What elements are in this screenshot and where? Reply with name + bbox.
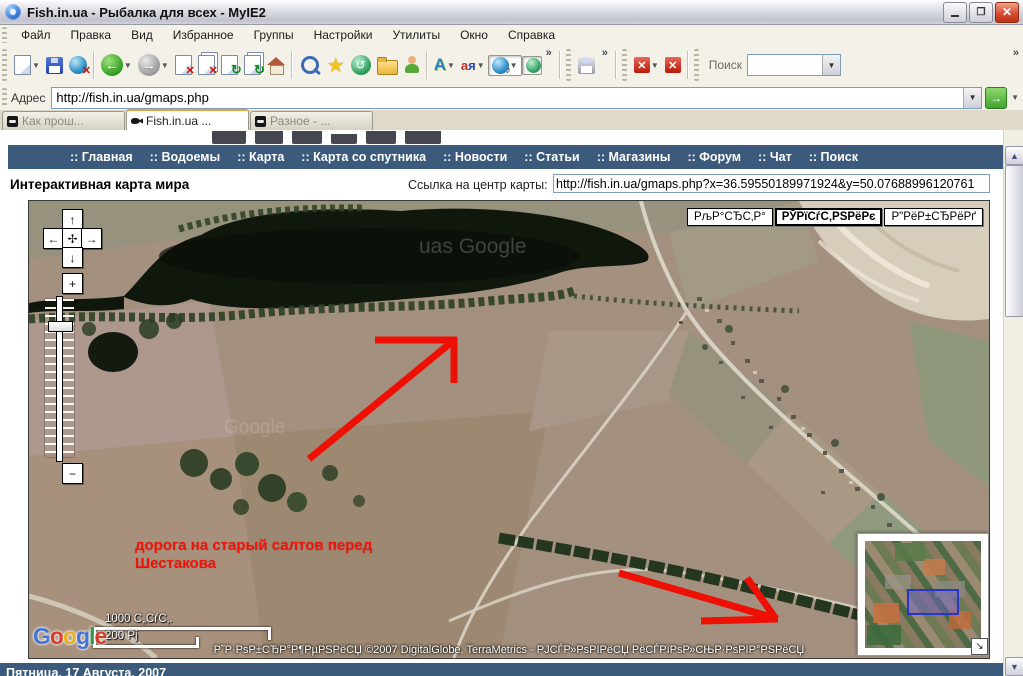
tab-raznoe[interactable]: Разное - ... xyxy=(250,111,373,130)
close-tab-button[interactable]: ✕ xyxy=(172,50,195,80)
partial-logo-letters xyxy=(212,131,441,144)
address-label: Адрес xyxy=(11,91,45,105)
search-dropdown-button[interactable]: ▼ xyxy=(822,55,840,75)
separator xyxy=(559,51,561,79)
toolbar-grip[interactable] xyxy=(622,49,627,81)
toolbar-overflow[interactable]: » xyxy=(598,47,612,59)
map-type-satellite-button[interactable]: РЎРїСѓС‚РЅРёРє xyxy=(775,208,883,226)
save-button[interactable] xyxy=(43,50,66,80)
proxy-icon: ✕ xyxy=(634,57,650,73)
close-all-icon: ✕ xyxy=(198,55,215,75)
pan-center-button[interactable] xyxy=(62,228,83,249)
save-icon xyxy=(46,57,63,74)
pan-up-button[interactable]: ↑ xyxy=(62,209,83,230)
kill-icon: ✕ xyxy=(665,57,681,73)
menu-help[interactable]: Справка xyxy=(498,26,565,44)
minimap-image[interactable] xyxy=(865,541,981,648)
close-all-tabs-button[interactable]: ✕ xyxy=(195,50,218,80)
site-navigation: :: Главная :: Водоемы :: Карта :: Карта … xyxy=(8,145,1003,169)
search-label: Поиск xyxy=(709,58,742,72)
title-bar[interactable]: Fish.in.ua - Рыбалка для всех - MyIE2 xyxy=(0,0,1023,25)
globe-icon: ✕ xyxy=(69,56,87,74)
nav-karta[interactable]: :: Карта xyxy=(237,150,284,164)
toolbar-grip[interactable] xyxy=(2,27,7,43)
address-input[interactable] xyxy=(52,88,963,108)
map-type-hybrid-button[interactable]: Р"РёР±СЂРёРґ xyxy=(884,208,983,226)
pan-down-button[interactable]: ↓ xyxy=(62,247,83,268)
tab-icon xyxy=(7,116,18,127)
go-button[interactable]: → xyxy=(985,87,1007,109)
save-page-button[interactable] xyxy=(575,50,598,80)
proxy-button[interactable]: ✕▼ xyxy=(631,50,662,80)
menu-view[interactable]: Вид xyxy=(121,26,163,44)
address-bar: Адрес ▼ → ▼ xyxy=(0,85,1023,111)
back-icon: ← xyxy=(101,54,123,76)
close-button[interactable] xyxy=(995,2,1019,23)
toolbar-overflow[interactable]: » xyxy=(1009,47,1023,59)
pan-right-button[interactable]: → xyxy=(81,228,102,249)
folders-button[interactable] xyxy=(374,50,401,80)
star-icon: ★ xyxy=(327,53,345,78)
minimap-collapse-button[interactable]: ↘ xyxy=(971,638,988,655)
footer-date: Пятница, 17 Августа, 2007 xyxy=(6,666,1003,676)
menu-utilities[interactable]: Утилиты xyxy=(382,26,450,44)
work-offline-button[interactable]: ✕ xyxy=(66,50,90,80)
kill-button[interactable]: ✕ xyxy=(662,50,684,80)
main-toolbar: ▼ ✕ ←▼ →▼ ✕ ✕ ↻ ↻ ★ ↺ A▼ а xyxy=(0,45,1023,86)
tab-icon xyxy=(255,116,266,127)
center-link-label: Ссылка на центр карты: xyxy=(408,178,548,192)
minimap-viewport-rect[interactable] xyxy=(907,589,959,615)
user-icon xyxy=(404,56,420,74)
svg-text:Google: Google xyxy=(224,417,285,438)
separator xyxy=(687,51,689,79)
clipped-icon xyxy=(526,58,541,73)
forward-icon: → xyxy=(138,54,160,76)
zoom-slider-handle[interactable] xyxy=(48,321,73,332)
history-icon: ↺ xyxy=(351,55,371,75)
home-button[interactable] xyxy=(264,50,288,80)
menu-options[interactable]: Настройки xyxy=(304,26,383,44)
vertical-scrollbar[interactable]: ▲ ▼ xyxy=(1003,130,1023,676)
zoom-out-button[interactable]: − xyxy=(62,463,83,484)
page-footer: Пятница, 17 Августа, 2007 xyxy=(0,663,1003,676)
separator xyxy=(615,51,617,79)
map-annotation-text: дорога на старый салтов перед Шестакова xyxy=(135,537,372,573)
scrollbar-thumb[interactable] xyxy=(1005,165,1023,317)
tab-fish-in-ua[interactable]: Fish.in.ua ... xyxy=(126,109,249,130)
nav-glavnaya[interactable]: :: Главная xyxy=(70,150,133,164)
tab-kak-prosh[interactable]: Как прош... xyxy=(2,111,125,130)
zoom-in-button[interactable]: + xyxy=(62,273,83,294)
toolbar-grip[interactable] xyxy=(2,49,7,81)
separator xyxy=(93,51,95,79)
home-icon xyxy=(267,57,285,73)
forward-button[interactable]: →▼ xyxy=(135,50,172,80)
separator xyxy=(291,51,293,79)
close-page-icon: ✕ xyxy=(175,55,192,75)
nav-forum[interactable]: :: Форум xyxy=(687,150,741,164)
separator xyxy=(426,51,428,79)
app-icon xyxy=(5,4,21,20)
nav-magaziny[interactable]: :: Магазины xyxy=(597,150,671,164)
restore-button[interactable] xyxy=(969,2,993,23)
save-page-icon xyxy=(578,57,595,74)
nav-poisk[interactable]: :: Поиск xyxy=(809,150,858,164)
nav-karta-so-sputnika[interactable]: :: Карта со спутника xyxy=(301,150,426,164)
map-attribution: Р˜Р·РѕР±СЂР°Р¶РµРЅРёСЏ ©2007 DigitalGlob… xyxy=(29,644,989,656)
menu-window[interactable]: Окно xyxy=(450,26,498,44)
menu-edit[interactable]: Правка xyxy=(61,26,122,44)
nav-stati[interactable]: :: Статьи xyxy=(524,150,579,164)
toolbar-grip[interactable] xyxy=(566,49,571,81)
window-title: Fish.in.ua - Рыбалка для всех - MyIE2 xyxy=(27,5,266,20)
refresh-button[interactable]: ↻ xyxy=(218,50,241,80)
new-page-icon xyxy=(14,55,31,75)
new-page-button[interactable]: ▼ xyxy=(11,50,43,80)
search-input[interactable] xyxy=(748,55,822,75)
media-dropdown[interactable]: ♪ ▼ xyxy=(488,55,522,76)
map-type-switcher: РљР°СЂС‚Р° РЎРїСѓС‚РЅРёРє Р"РёР±СЂРёРґ xyxy=(687,208,983,226)
nav-chat[interactable]: :: Чат xyxy=(758,150,792,164)
satellite-map[interactable]: uas Google Google ↑ ← → ↓ + − РљР°СЂС‚Р° xyxy=(28,200,990,659)
map-type-map-button[interactable]: РљР°СЂС‚Р° xyxy=(687,208,773,226)
translate-icon: ая xyxy=(461,58,476,73)
search-icon xyxy=(301,56,319,74)
scale-feet-label: 1000 С„СѓС‚. xyxy=(105,613,172,625)
font-size-button[interactable]: A▼ xyxy=(431,50,458,80)
go-options-caret[interactable]: ▼ xyxy=(1011,93,1019,102)
user-button[interactable] xyxy=(401,50,423,80)
center-link-input[interactable] xyxy=(553,174,990,193)
search-button[interactable] xyxy=(296,50,324,80)
folder-icon xyxy=(377,60,398,75)
minimize-button[interactable] xyxy=(943,2,967,23)
map-scale-bar: 1000 С„СѓС‚. 200 Рј xyxy=(93,615,268,645)
menu-bar: Файл Правка Вид Избранное Группы Настрой… xyxy=(0,25,1023,46)
menu-groups[interactable]: Группы xyxy=(244,26,304,44)
clipped-tool[interactable] xyxy=(522,56,542,75)
menu-file[interactable]: Файл xyxy=(11,26,61,44)
translate-button[interactable]: ая▼ xyxy=(458,50,488,80)
scale-meters-label: 200 Рј xyxy=(105,630,138,642)
back-button[interactable]: ←▼ xyxy=(98,50,135,80)
page-viewport: :: Главная :: Водоемы :: Карта :: Карта … xyxy=(0,130,1003,676)
address-input-wrap: ▼ xyxy=(51,87,982,109)
scroll-down-button[interactable]: ▼ xyxy=(1005,657,1023,676)
favorites-button[interactable]: ★ xyxy=(324,50,348,80)
google-watermark: uas Google xyxy=(419,235,526,258)
map-satellite-image[interactable]: uas Google Google xyxy=(29,201,989,658)
search-combo[interactable]: ▼ xyxy=(747,54,841,76)
refresh-all-button[interactable]: ↻ xyxy=(241,50,264,80)
toolbar-grip[interactable] xyxy=(694,49,699,81)
media-globe-icon: ♪ xyxy=(492,57,509,74)
menu-favorites[interactable]: Избранное xyxy=(163,26,244,44)
overview-minimap[interactable]: ↘ xyxy=(857,533,989,656)
font-size-icon: A xyxy=(434,55,446,75)
nav-vodoemy[interactable]: :: Водоемы xyxy=(150,150,221,164)
tab-bar: Как прош... Fish.in.ua ... Разное - ... xyxy=(0,110,1023,130)
toolbar-grip[interactable] xyxy=(2,88,7,108)
toolbar-overflow[interactable]: » xyxy=(542,47,556,59)
address-dropdown-button[interactable]: ▼ xyxy=(963,88,981,108)
red-x-badge: ✕ xyxy=(82,64,91,77)
fish-icon xyxy=(131,115,142,126)
refresh-all-icon: ↻ xyxy=(244,55,261,75)
nav-novosti[interactable]: :: Новости xyxy=(443,150,507,164)
scroll-up-button[interactable]: ▲ xyxy=(1005,146,1023,165)
refresh-icon: ↻ xyxy=(221,55,238,75)
history-button[interactable]: ↺ xyxy=(348,50,374,80)
page-title: Интерактивная карта мира xyxy=(10,177,189,192)
pan-left-button[interactable]: ← xyxy=(43,228,64,249)
